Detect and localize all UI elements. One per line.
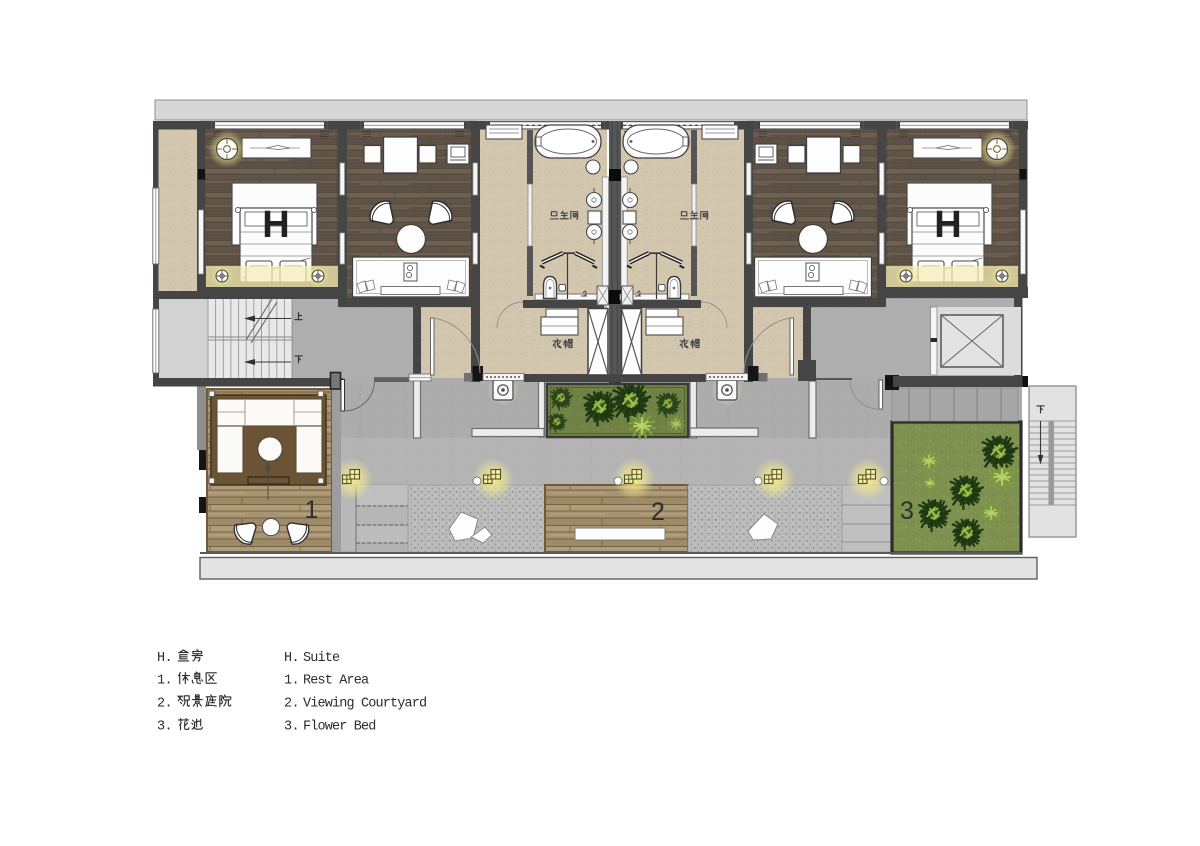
svg-text:2.: 2. bbox=[284, 697, 299, 712]
svg-text:Suite: Suite bbox=[303, 651, 340, 666]
svg-text:2: 2 bbox=[651, 498, 665, 526]
svg-text:H: H bbox=[262, 204, 289, 246]
svg-text:Flower Bed: Flower Bed bbox=[303, 720, 376, 735]
svg-text:Rest Area: Rest Area bbox=[303, 674, 369, 689]
svg-text:1.: 1. bbox=[157, 674, 172, 689]
svg-text:Viewing Courtyard: Viewing Courtyard bbox=[303, 697, 426, 712]
svg-text:1.: 1. bbox=[284, 674, 299, 689]
svg-text:H.: H. bbox=[157, 651, 172, 666]
svg-text:3: 3 bbox=[900, 497, 914, 525]
svg-text:1: 1 bbox=[305, 496, 319, 524]
svg-text:2.: 2. bbox=[157, 697, 172, 712]
svg-text:H: H bbox=[934, 204, 961, 246]
svg-text:3.: 3. bbox=[284, 720, 299, 735]
svg-text:3.: 3. bbox=[157, 720, 172, 735]
svg-text:H.: H. bbox=[284, 651, 299, 666]
